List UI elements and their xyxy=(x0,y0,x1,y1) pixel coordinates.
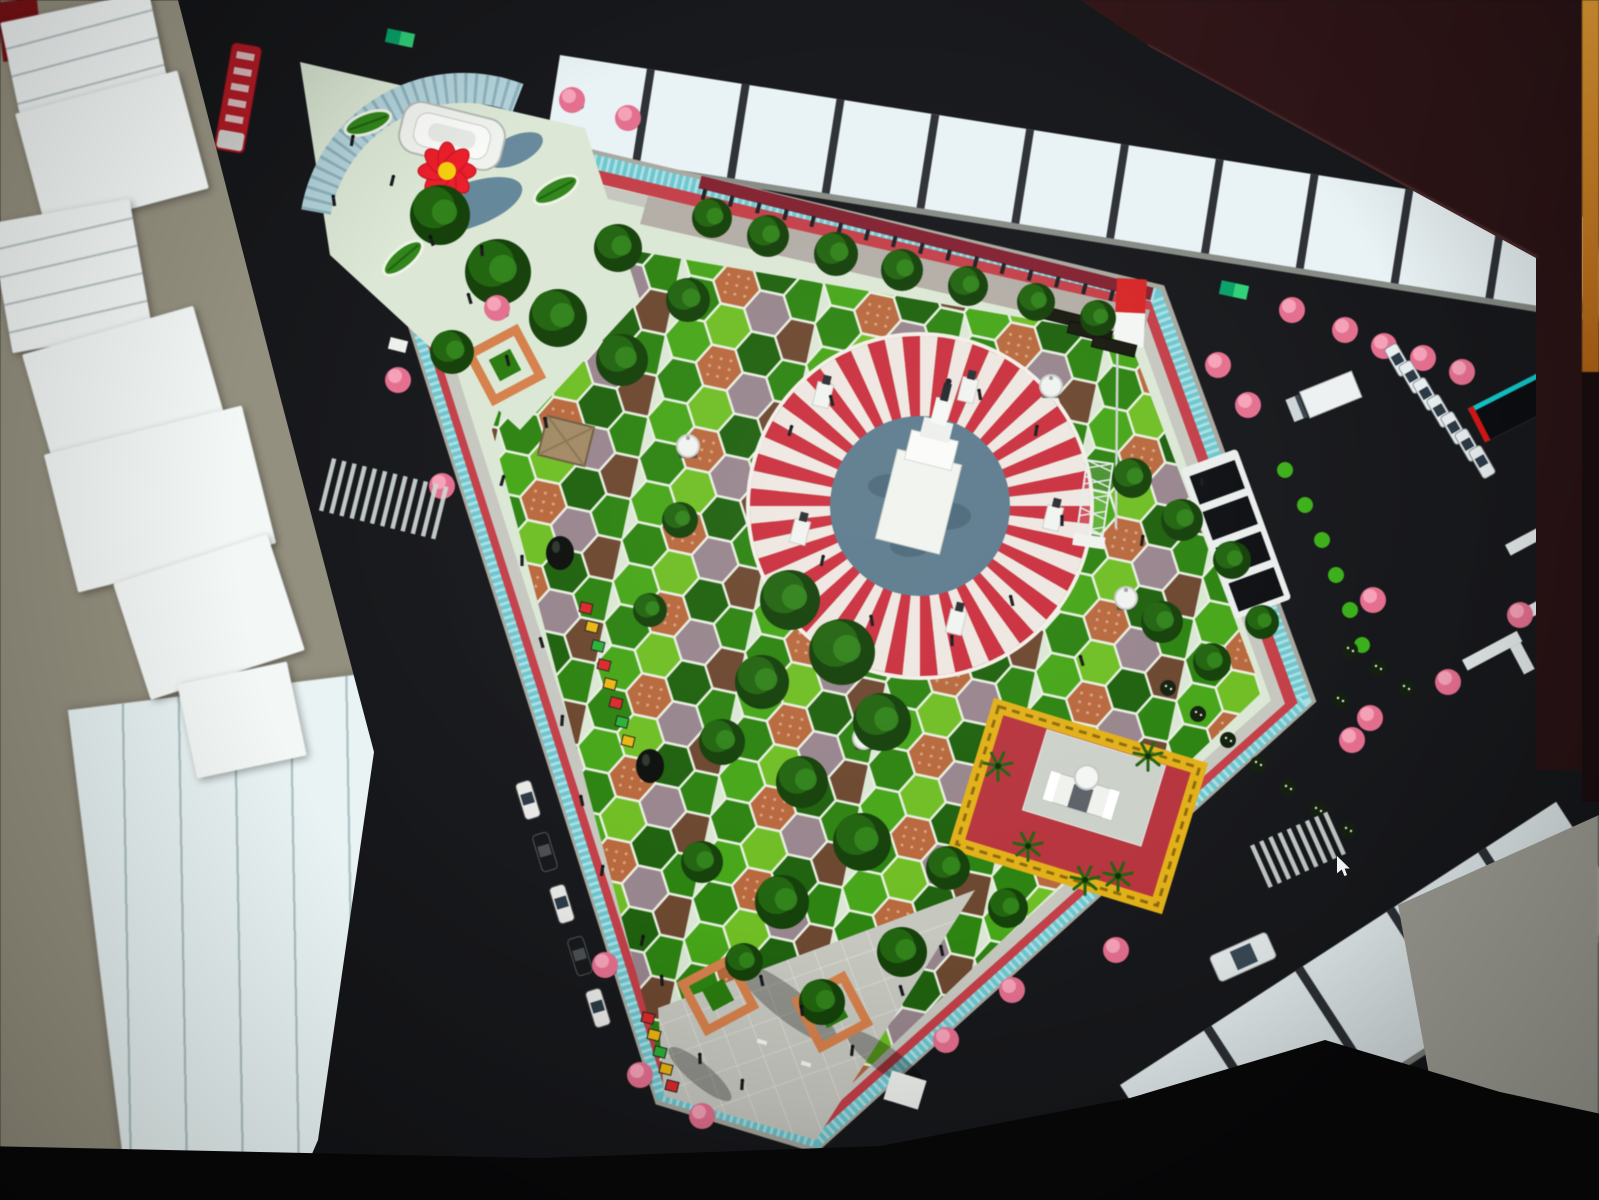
tree-dark xyxy=(1080,300,1116,336)
tree-dark xyxy=(948,266,988,306)
tree-dark xyxy=(809,619,875,685)
tree-dark xyxy=(1161,499,1203,541)
tree-pink-blossom xyxy=(1449,359,1475,385)
flower-bush xyxy=(1190,706,1206,722)
tree-pink-blossom xyxy=(1332,317,1358,343)
tree-dark xyxy=(1141,601,1183,643)
tree-dark xyxy=(853,693,911,751)
flower-bush xyxy=(1160,680,1176,696)
tree-dark xyxy=(1112,458,1152,498)
tree-dark xyxy=(692,198,732,238)
market-stall xyxy=(653,1046,667,1059)
tree-dark xyxy=(1017,283,1055,321)
market-stall xyxy=(579,602,593,615)
market-stall xyxy=(597,659,611,672)
person xyxy=(698,1053,702,1064)
tree-dark xyxy=(755,875,809,929)
dark-dome-sculpture xyxy=(546,536,574,570)
tree-pink-blossom xyxy=(484,295,510,321)
dome-pavilion xyxy=(677,435,699,458)
flower-bush xyxy=(1280,780,1296,796)
flower-bush xyxy=(1370,660,1386,676)
tree-pink-blossom xyxy=(385,367,411,393)
tree-dark xyxy=(699,719,745,765)
tree-pink-blossom xyxy=(615,105,641,131)
tree-dark xyxy=(799,979,845,1025)
wood-edge xyxy=(1582,372,1599,802)
tree-dark xyxy=(596,334,648,386)
market-stall xyxy=(615,716,629,729)
market-stall xyxy=(621,735,635,748)
shrub xyxy=(1314,532,1330,548)
tree-dark xyxy=(594,224,642,272)
tree-dark xyxy=(633,593,667,627)
flower-bush xyxy=(1220,732,1236,748)
tree-pink-blossom xyxy=(592,952,618,978)
tree-pink-blossom xyxy=(1507,602,1533,628)
tree-dark xyxy=(1193,643,1231,681)
tree-dark xyxy=(747,215,789,257)
shrub xyxy=(1297,497,1313,513)
tree-dark xyxy=(1213,541,1251,579)
tree-pink-blossom xyxy=(1360,587,1386,613)
flower-bush xyxy=(1310,802,1326,818)
market-stall xyxy=(609,697,623,710)
tree-pink-blossom xyxy=(1205,352,1231,378)
tree-pink-blossom xyxy=(627,1062,653,1088)
tree-dark xyxy=(1245,605,1279,639)
tree-dark xyxy=(430,330,474,374)
tree-dark xyxy=(814,232,858,276)
tree-dark xyxy=(529,289,587,347)
person xyxy=(520,555,524,566)
shrub xyxy=(1328,567,1344,583)
dome-pavilion xyxy=(1115,587,1137,610)
flower-bush xyxy=(1250,756,1266,772)
tree-dark xyxy=(410,185,470,245)
tree-pink-blossom xyxy=(559,87,585,113)
tree-pink-blossom xyxy=(1435,669,1461,695)
tree-dark xyxy=(662,502,698,538)
tree-dark xyxy=(725,943,763,981)
tree-pink-blossom xyxy=(689,1103,715,1129)
market-stall xyxy=(647,1029,661,1042)
market-stall xyxy=(641,1012,655,1025)
tree-dark xyxy=(926,846,970,890)
shrub xyxy=(1342,602,1358,618)
tree-dark xyxy=(881,249,923,291)
tree-dark xyxy=(666,278,710,322)
dark-dome-sculpture xyxy=(636,749,664,783)
tree-dark xyxy=(735,655,789,709)
flower-bush xyxy=(1398,680,1414,696)
flower-bush xyxy=(1342,642,1358,658)
tree-pink-blossom xyxy=(933,1027,959,1053)
flower-bush xyxy=(1340,822,1356,838)
tree-dark xyxy=(760,570,820,630)
tree-pink-blossom xyxy=(1279,297,1305,323)
flower-bush xyxy=(1332,692,1348,708)
tree-dark xyxy=(988,888,1028,928)
person xyxy=(950,635,954,646)
market-stall xyxy=(603,678,617,691)
tree-pink-blossom xyxy=(1103,937,1129,963)
tree-pink-blossom xyxy=(999,977,1025,1003)
market-stall xyxy=(659,1063,673,1076)
market-stall xyxy=(665,1080,679,1093)
tree-dark xyxy=(877,927,927,977)
market-stall xyxy=(591,640,605,653)
shrub xyxy=(1277,462,1293,478)
tree-dark xyxy=(833,813,891,871)
tree-dark xyxy=(776,756,828,808)
person xyxy=(1060,515,1064,526)
photo-frame xyxy=(0,0,1599,1200)
market-stall xyxy=(585,621,599,634)
tree-pink-blossom xyxy=(1357,705,1383,731)
tree-pink-blossom xyxy=(1339,727,1365,753)
tree-pink-blossom xyxy=(1235,392,1261,418)
tree-dark xyxy=(681,841,723,883)
orange-trim xyxy=(1582,0,1599,372)
dome-pavilion xyxy=(1040,375,1062,398)
